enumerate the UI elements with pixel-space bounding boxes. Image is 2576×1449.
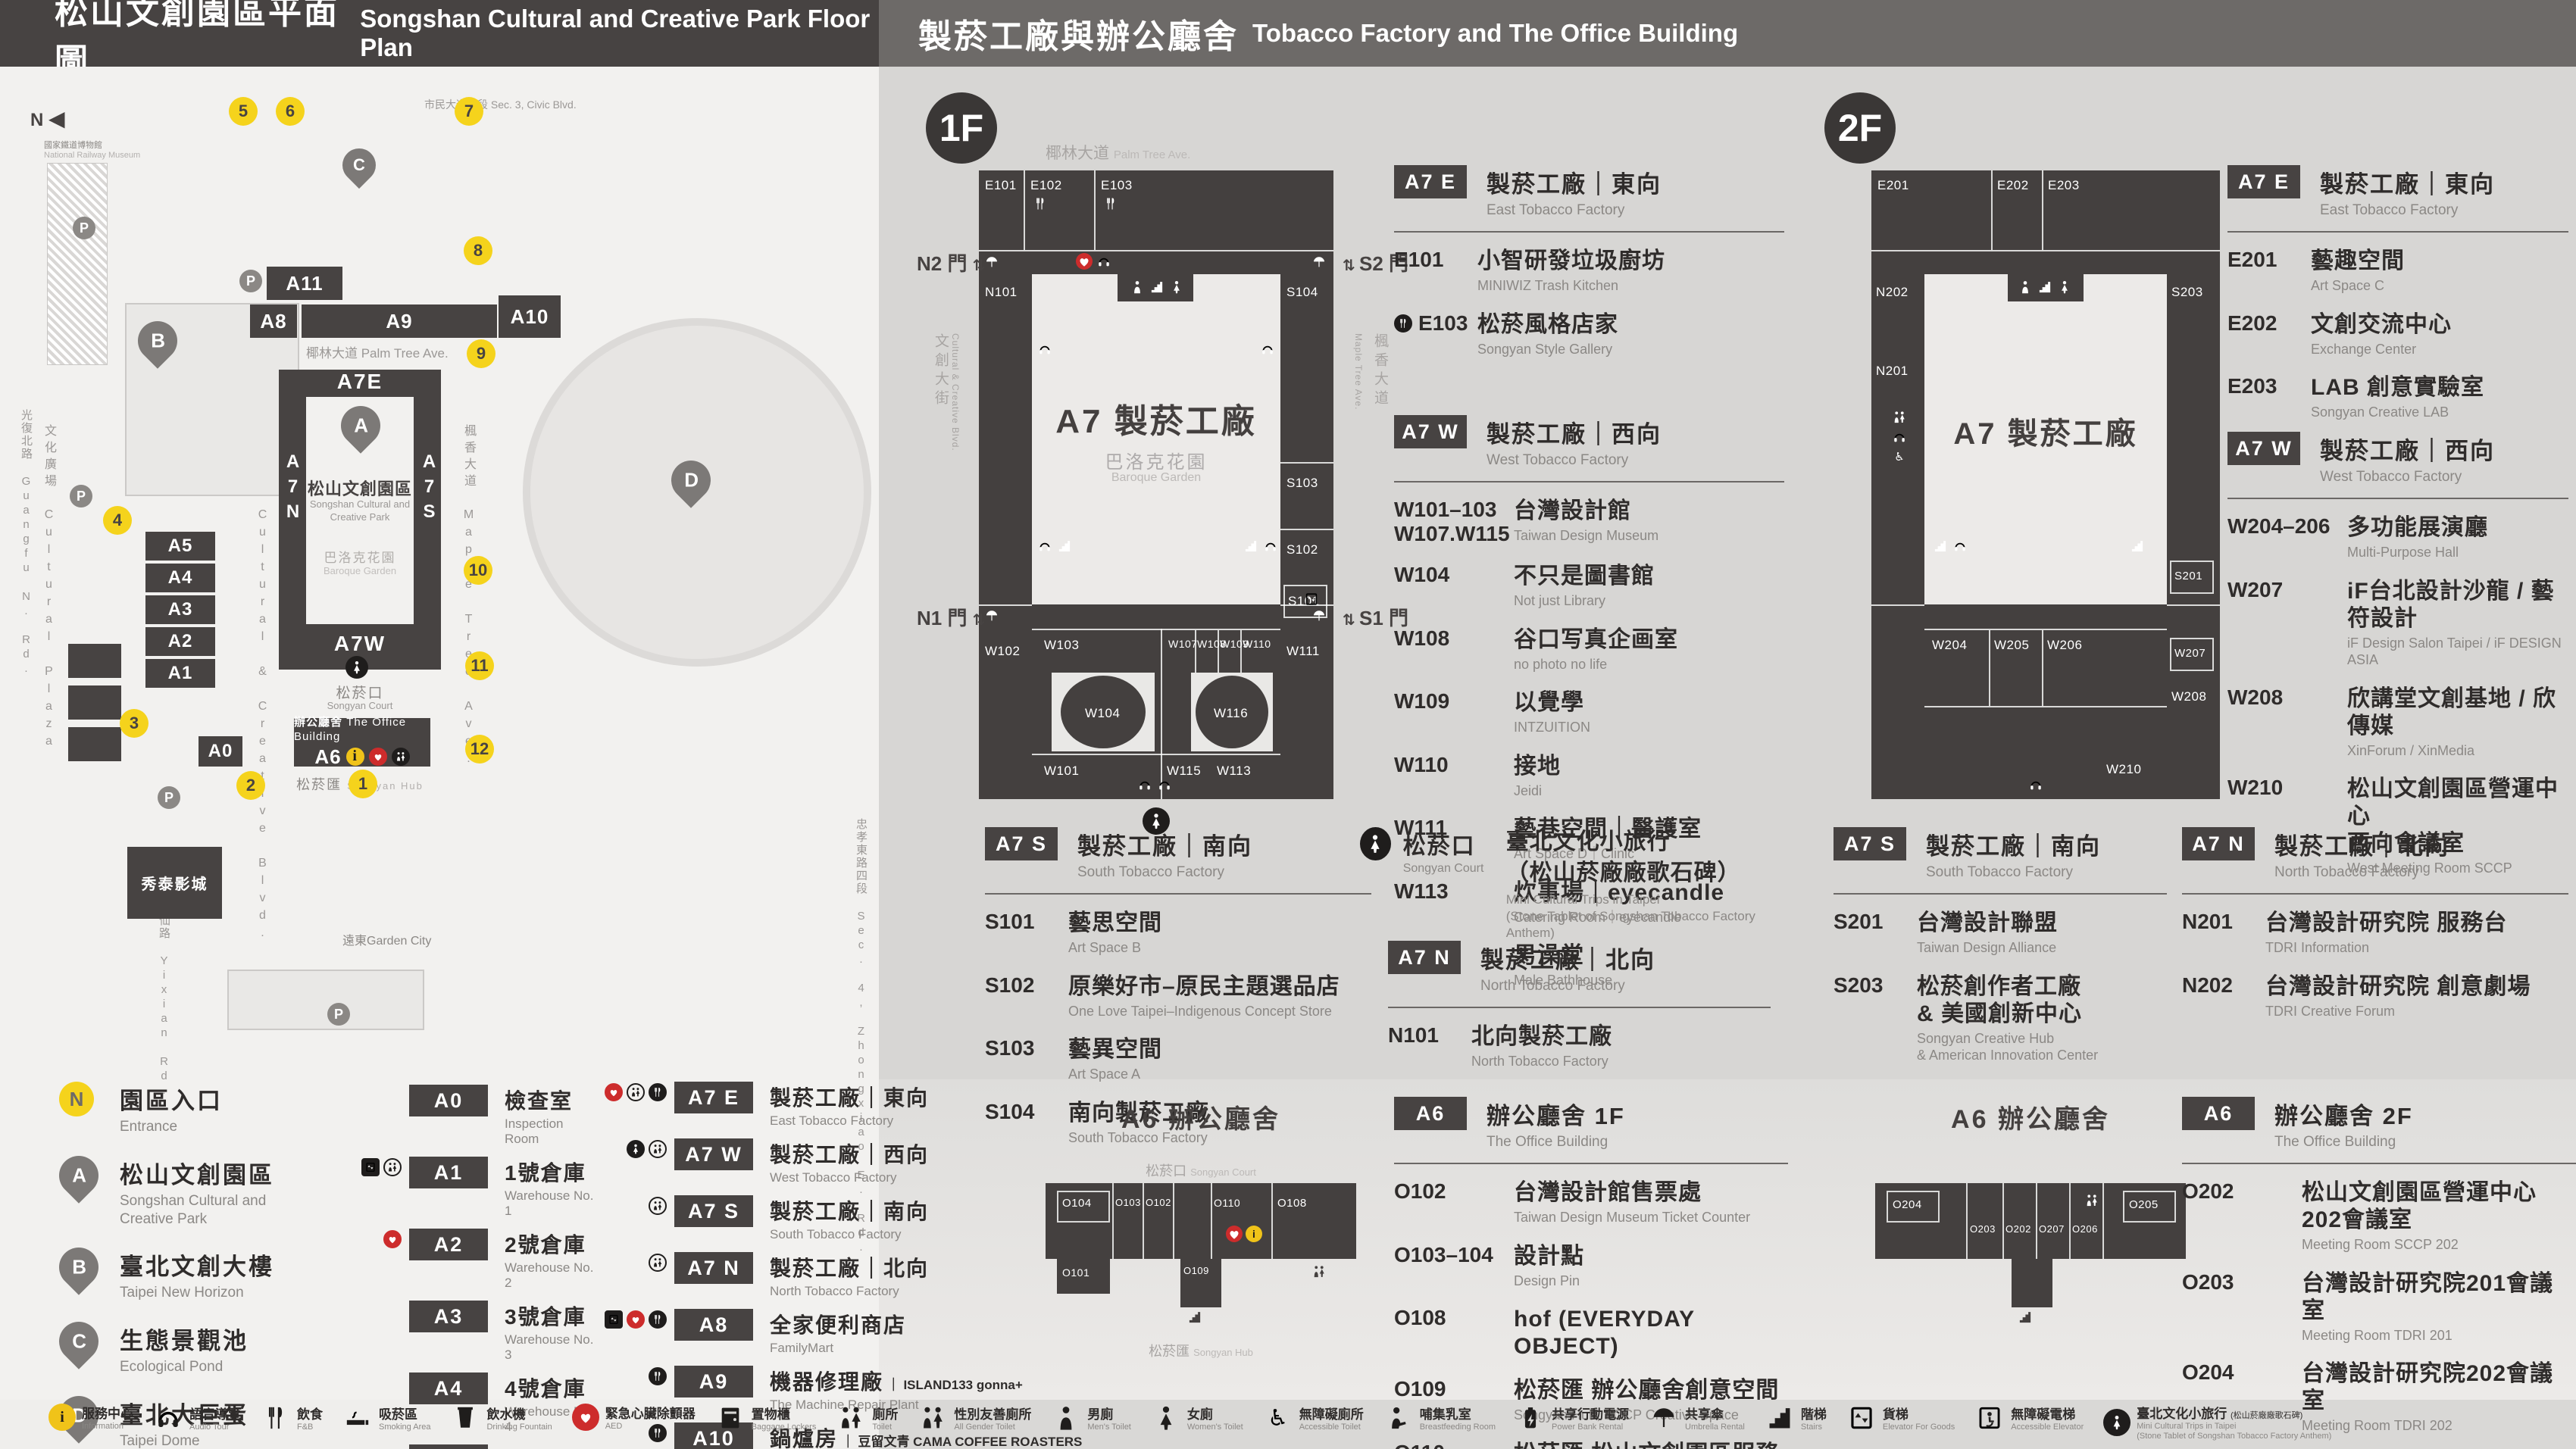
room-e103: E103 — [1101, 178, 1133, 193]
item-name-en: Art Space A — [1068, 1066, 1371, 1083]
umbrella-icon — [1649, 1403, 1679, 1433]
entrance-10: 10 — [464, 556, 492, 585]
section-a7w-2f: A7 W製菸工廠｜西向West Tobacco FactoryW204–206多… — [2227, 432, 2568, 894]
entrance-5: 5 — [229, 97, 258, 126]
power-icon — [1515, 1403, 1546, 1433]
building-badge: A6 — [1394, 1097, 1467, 1130]
gate-n1: N1 門 ⇅ — [917, 603, 983, 631]
section-title-zh: 製菸工廠與辦公廳舍 — [918, 9, 1239, 58]
section-title-en: The Office Building — [1487, 1134, 1625, 1151]
aed-icon — [572, 1404, 599, 1431]
locker-icon — [715, 1403, 746, 1433]
building-badge: A9 — [674, 1366, 753, 1397]
item-name-en: Songyan Creative Hub& American Innovatio… — [1917, 1030, 2167, 1064]
legend-accelev: 無障礙電梯Accessible Elevator — [1974, 1403, 2084, 1433]
legend-toilet: 廁所Toilet — [836, 1403, 898, 1433]
legend-places: N園區入口EntranceA松山文創園區Songshan Cultural an… — [59, 1082, 324, 1449]
section-a7n-1f: A7 N製菸工廠｜北向North Tobacco FactoryN101北向製菸… — [1388, 941, 1771, 1087]
ring-label-a7e: A7E — [279, 370, 441, 394]
ring-label-a7w: A7W — [279, 632, 441, 656]
umbrella-icon — [1311, 607, 1327, 624]
info-icon: i — [1246, 1226, 1262, 1242]
building-badge: A7 N — [1388, 941, 1461, 974]
section-title-zh: 製菸工廠｜東向 — [1487, 165, 1662, 199]
aed-icon — [1226, 1226, 1243, 1242]
room-w206: W206 — [2047, 638, 2082, 653]
room-o206: O206 — [2072, 1223, 2098, 1235]
section-title-zh: 製菸工廠｜東向 — [2320, 165, 2495, 199]
list-item-E202: E202文創交流中心Exchange Center — [2227, 311, 2568, 358]
section-title-en: East Tobacco Factory — [1487, 202, 1662, 219]
aed-icon — [383, 1230, 402, 1248]
building-badge: A7 S — [1834, 827, 1906, 860]
toilet-icon — [2056, 279, 2073, 295]
item-name-en: Songyan Creative LAB — [2311, 404, 2568, 421]
room-w113: W113 — [1217, 764, 1251, 779]
item-name-zh: 藝思空間 — [1068, 910, 1371, 937]
list-item-O102: O102台灣設計館售票處Taiwan Design Museum Ticket … — [1394, 1179, 1788, 1226]
section-title-en: The Office Building — [2274, 1134, 2413, 1151]
info-icon: i — [346, 748, 364, 766]
legend-wheelchair: ♿無障礙廁所Accessible Toilet — [1263, 1403, 1364, 1433]
umbrella-icon — [983, 607, 1000, 624]
legend-umbrella: 共享傘Umbrella Rental — [1649, 1403, 1745, 1433]
legend-audio: 語音導覽Audio Tour — [153, 1403, 241, 1433]
parking-icon: P — [239, 270, 262, 292]
section-title-zh: 製菸工廠｜南向 — [1077, 827, 1252, 861]
item-name-zh: 欣講堂文創基地 / 欣傳媒 — [2347, 685, 2568, 740]
item-name-en: Taiwan Design Museum — [1514, 527, 1784, 545]
block-a6: 辦公廳舍 The Office Building A6 i — [294, 718, 430, 767]
street-guangfu: 光復北路 Guangfu N. Rd. — [18, 409, 34, 676]
room-w110: W110 — [1243, 638, 1271, 650]
section-title-zh: 辦公廳舍 1F — [1487, 1097, 1625, 1131]
audio-icon — [1891, 429, 1908, 445]
room-o109: O109 — [1183, 1265, 1209, 1276]
north-indicator: N ◀ — [30, 106, 65, 131]
section-title-zh: 製菸工廠｜西向 — [1487, 415, 1662, 449]
item-name-en: Multi-Purpose Hall — [2347, 544, 2568, 561]
section-title-zh: 辦公廳舍 2F — [2274, 1097, 2413, 1131]
info-icon: i — [48, 1404, 76, 1431]
legend-culture: 臺北文化小旅行 (松山菸廠廠歌石碑)Mini Cultural Trips in… — [2103, 1403, 2331, 1441]
item-name-zh: 小智研發垃圾廚坊 — [1477, 248, 1784, 275]
legend-man: 男廁Men's Toilet — [1051, 1403, 1131, 1433]
culture-trip-icon — [1360, 827, 1391, 860]
item-name-en: Exchange Center — [2311, 341, 2568, 358]
a6-plan-2f: A6 辦公廳舍 O204 O203 O202 O207 O206 O205 — [1856, 1091, 2205, 1394]
list-item-O203: O203台灣設計研究院201會議室Meeting Room TDRI 201 — [2182, 1270, 2576, 1344]
room-o205: O205 — [2129, 1198, 2159, 1211]
item-name-zh: LAB 創意實驗室 — [2311, 374, 2568, 401]
item-name-zh: 台灣設計館 — [1514, 498, 1784, 525]
legend-locker: 置物櫃Baggage Lockers — [715, 1403, 817, 1433]
room-o103: O103 — [1115, 1197, 1141, 1208]
songyan-court-en: Songyan Court — [279, 700, 441, 711]
section-title-zh: 製菸工廠｜北向 — [1480, 941, 1655, 975]
legend-buildings-b: A7 E製菸工廠｜東向East Tobacco FactoryA7 W製菸工廠｜… — [583, 1082, 879, 1449]
floor2-plan: E201 E202 E203 N202 N201 S203 S201 W204 … — [1818, 114, 2243, 841]
toilet-icon — [383, 1158, 402, 1176]
list-item-W108: W108谷口写真企画室no photo no life — [1394, 626, 1784, 673]
item-name-en: Design Pin — [1514, 1273, 1788, 1290]
legend-row-A7S: A7 S製菸工廠｜南向South Tobacco Factory — [583, 1195, 879, 1242]
toilet-icon — [649, 1140, 667, 1158]
item-name-zh: 藝異空間 — [1068, 1036, 1371, 1063]
section-a6-1f: A6辦公廳舍 1FThe Office BuildingO102台灣設計館售票處… — [1394, 1097, 1788, 1449]
section-title-en: West Tobacco Factory — [2320, 469, 2495, 486]
item-name-en: Art Space C — [2311, 277, 2568, 295]
toilet-icon — [649, 1197, 667, 1215]
street-cultural-plaza: 文化廣場 Cultural Plaza — [39, 424, 58, 752]
section-title-zh: 製菸工廠｜北向 — [2274, 827, 2449, 861]
entrance-key-icon: N — [59, 1082, 94, 1116]
building-badge: A6 — [2182, 1097, 2255, 1130]
block-a3: A3 — [145, 595, 215, 624]
list-item-E101: E101小智研發垃圾廚坊MINIWIZ Trash Kitchen — [1394, 248, 1784, 295]
item-name-zh: hof (EVERYDAY OBJECT) — [1514, 1306, 1788, 1360]
legend-buildings-a: A0檢查室Inspection RoomA11號倉庫Warehouse No. … — [318, 1085, 599, 1449]
legend-row-A7W: A7 W製菸工廠｜西向West Tobacco Factory — [583, 1138, 879, 1185]
building-badge: A7 S — [985, 827, 1058, 860]
room-w204: W204 — [1932, 638, 1967, 653]
item-name-zh: 松菸匯 辦公廳舍創意空間 — [1514, 1377, 1788, 1404]
songyan-court-note: 松菸口 Songyan Court 臺北文化小旅行（松山菸廠廠歌石碑） Mini… — [1360, 827, 1784, 942]
floor-plan-poster: 松山文創園區平面圖 Songshan Cultural and Creative… — [0, 0, 2576, 1449]
building-badge: A8 — [674, 1309, 753, 1341]
page-title-en: Songshan Cultural and Creative Park Floo… — [360, 5, 879, 62]
toilet-icon — [1168, 279, 1185, 295]
list-item-S103: S103藝異空間Art Space A — [985, 1036, 1371, 1083]
room-o102: O102 — [1146, 1197, 1171, 1208]
legend-fountain: 飲水機Drinking Fountain — [450, 1403, 552, 1433]
stairs-icon — [1186, 1309, 1203, 1326]
building-badge: A0 — [409, 1085, 488, 1116]
legend-elevator: 貨梯Elevator For Goods — [1846, 1403, 1955, 1433]
item-name-zh: 不只是圖書館 — [1514, 563, 1784, 590]
audio-icon — [1952, 538, 1968, 554]
room-s104: S104 — [1286, 285, 1318, 300]
section-title-en: South Tobacco Factory — [1077, 864, 1252, 881]
item-name-en: iF Design Salon Taipei / iF DESIGN ASIA — [2347, 635, 2568, 669]
legend-toilet: 性別友善廁所All Gender Toilet — [918, 1403, 1031, 1433]
parking-icon: P — [70, 485, 92, 507]
header-left: 松山文創園區平面圖 Songshan Cultural and Creative… — [0, 0, 879, 67]
parking-icon: P — [327, 1003, 350, 1026]
elevator-icon — [605, 1310, 623, 1329]
building-badge: A7 E — [1394, 165, 1467, 198]
list-item-W110: W110接地Jeidi — [1394, 753, 1784, 800]
building-badge: A5 — [409, 1444, 488, 1449]
list-item-E201: E201藝趣空間Art Space C — [2227, 248, 2568, 295]
room-o108: O108 — [1277, 1197, 1307, 1210]
toilet-icon — [649, 1254, 667, 1272]
room-s103: S103 — [1286, 476, 1318, 491]
item-name-zh: 藝趣空間 — [2311, 248, 2568, 275]
toilet-icon — [392, 748, 410, 766]
room-o110: O110 — [1214, 1197, 1240, 1209]
room-e102: E102 — [1030, 178, 1062, 193]
item-name-zh: 台灣設計研究院 創意劇場 — [2265, 973, 2568, 1001]
room-w205: W205 — [1994, 638, 2029, 653]
room-w116: W116 — [1214, 706, 1248, 721]
fountain-icon — [450, 1403, 480, 1433]
legend-woman: 女廁Women's Toilet — [1151, 1403, 1243, 1433]
legend-row-A5: A55號倉庫Warehouse No. 5 — [318, 1444, 599, 1449]
room-e201: E201 — [1877, 178, 1909, 193]
item-name-zh: 台灣設計聯盟 — [1917, 910, 2167, 937]
a6-plan-1f: A6 辦公廳舍 松菸口 Songyan Court O104 O103 O102… — [1023, 1091, 1379, 1394]
room-o203: O203 — [1970, 1223, 1996, 1235]
fork-icon — [649, 1367, 667, 1385]
toilet-icon — [1891, 409, 1908, 426]
fork-icon — [649, 1083, 667, 1101]
item-name-zh: 文創交流中心 — [2311, 311, 2568, 339]
room-s201: S201 — [2174, 570, 2202, 582]
legend-row-A7E: A7 E製菸工廠｜東向East Tobacco Factory — [583, 1082, 879, 1129]
section-a7s-2f: A7 S製菸工廠｜南向South Tobacco FactoryS201台灣設計… — [1834, 827, 2167, 1081]
entrance-7: 7 — [455, 97, 483, 126]
list-item-O108: O108hof (EVERYDAY OBJECT) — [1394, 1306, 1788, 1360]
building-badge: A7 S — [674, 1195, 753, 1227]
item-name-en: Taiwan Design Alliance — [1917, 939, 2167, 957]
umbrella-icon — [1311, 254, 1327, 270]
list-item-W104: W104不只是圖書館Not just Library — [1394, 563, 1784, 610]
toilet-icon — [2017, 279, 2034, 295]
item-name-zh: iF台北設計沙龍 / 藝符設計 — [2347, 578, 2568, 632]
railway-museum-block — [47, 163, 108, 365]
building-badge: A4 — [409, 1372, 488, 1404]
item-name-en: Meeting Room SCCP 202 — [2302, 1236, 2576, 1254]
baroque-garden-zh: 巴洛克花園 — [279, 547, 441, 566]
block-a0: A0 — [199, 736, 242, 767]
room-w104: W104 — [1085, 706, 1120, 721]
garden-city-label: 遠東Garden City — [342, 930, 431, 948]
aed-icon — [627, 1310, 645, 1329]
building-badge: A7 N — [2182, 827, 2255, 860]
item-name-zh: 台灣設計研究院 服務台 — [2265, 910, 2568, 937]
item-name-en: One Love Taipei–Indigenous Concept Store — [1068, 1003, 1371, 1020]
item-name-en: Songyan Style Gallery — [1477, 341, 1784, 358]
toilet-icon — [1129, 279, 1146, 295]
item-name-en: no photo no life — [1514, 656, 1784, 673]
legend-place-A: A松山文創園區Songshan Cultural and Creative Pa… — [59, 1156, 324, 1229]
section-title-zh: 製菸工廠｜西向 — [2320, 432, 2495, 466]
room-w102: W102 — [985, 644, 1020, 659]
room-e202: E202 — [1997, 178, 2029, 193]
section-a7n-2f: A7 N製菸工廠｜北向North Tobacco FactoryN201台灣設計… — [2182, 827, 2568, 1036]
park-name-zh: 松山文創園區 — [279, 476, 441, 500]
item-name-zh: 設計點 — [1514, 1243, 1788, 1270]
list-item-S102: S102原樂好市–原民主題選品店One Love Taipei–Indigeno… — [985, 973, 1371, 1020]
room-n201: N201 — [1876, 364, 1909, 379]
aed-icon — [369, 748, 387, 766]
room-w207: W207 — [2174, 647, 2206, 660]
block-a4: A4 — [145, 564, 215, 592]
room-s203: S203 — [2171, 285, 2203, 300]
legend-place-C: C生態景觀池Ecological Pond — [59, 1322, 324, 1376]
block-a1: A1 — [145, 659, 215, 688]
parking-icon: P — [158, 786, 180, 809]
item-name-zh: 松菸創作者工廠& 美國創新中心 — [1917, 973, 2167, 1028]
room-o202: O202 — [2005, 1223, 2031, 1235]
room-w208: W208 — [2171, 689, 2206, 704]
entrance-2: 2 — [236, 771, 265, 800]
item-name-en: TDRI Information — [2265, 939, 2568, 957]
item-name-zh: 接地 — [1514, 753, 1784, 780]
fork-icon — [1394, 314, 1412, 333]
list-item-S101: S101藝思空間Art Space B — [985, 910, 1371, 957]
audio-icon — [1259, 341, 1276, 358]
umbrella-icon — [983, 254, 1000, 270]
list-item-N101: N101北向製菸工廠North Tobacco Factory — [1388, 1023, 1771, 1070]
room-w103: W103 — [1044, 638, 1079, 653]
entrance-1: 1 — [349, 770, 377, 798]
elevator-icon — [1846, 1403, 1877, 1433]
room-o207: O207 — [2039, 1223, 2065, 1235]
elevator-icon — [1303, 591, 1320, 607]
audio-icon — [1136, 776, 1153, 793]
stairs-icon — [1932, 538, 1949, 554]
room-e203: E203 — [2048, 178, 2080, 193]
building-badge: A7 W — [1394, 415, 1467, 448]
songyan-court-zh: 松菸口 — [279, 682, 441, 702]
block-a10: A10 — [499, 295, 561, 338]
building-badge: A7 W — [2227, 432, 2300, 465]
plan-center-title: A7 製菸工廠 — [1055, 394, 1256, 442]
list-item-W207: W207iF台北設計沙龍 / 藝符設計iF Design Salon Taipe… — [2227, 578, 2568, 669]
legend-power: 共享行動電源Power Bank Rental — [1515, 1403, 1629, 1433]
culture-icon — [627, 1140, 645, 1158]
baby-icon — [1383, 1403, 1414, 1433]
section-a6-2f: A6辦公廳舍 2FThe Office BuildingO202松山文創園區營運… — [2182, 1097, 2576, 1449]
toilet-icon — [836, 1403, 866, 1433]
room-o101: O101 — [1062, 1266, 1089, 1279]
icon-legend: i服務中心Information語音導覽Audio Tour飲食F&B吸菸區Sm… — [48, 1403, 2564, 1441]
section-a7e-2f: A7 E製菸工廠｜東向East Tobacco FactoryE201藝趣空間A… — [2227, 165, 2568, 438]
item-name-en: Art Space B — [1068, 939, 1371, 957]
list-item-S203: S203松菸創作者工廠& 美國創新中心Songyan Creative Hub&… — [1834, 973, 2167, 1064]
culture-icon — [2103, 1409, 2131, 1436]
audio-icon — [2027, 776, 2044, 793]
list-item-O202: O202松山文創園區營運中心202會議室Meeting Room SCCP 20… — [2182, 1179, 2576, 1254]
elevator-icon — [361, 1158, 380, 1176]
entrance-11: 11 — [465, 651, 494, 680]
section-title-en: Tobacco Factory and The Office Building — [1252, 19, 1738, 48]
plan-center-title: A7 製菸工廠 — [1953, 409, 2137, 453]
legend-smoking: 吸菸區Smoking Area — [342, 1403, 430, 1433]
fork-icon — [261, 1403, 291, 1433]
building-badge: A7 E — [2227, 165, 2300, 198]
audio-icon — [1036, 341, 1053, 358]
building-badge: A3 — [409, 1301, 488, 1332]
item-name-zh: 松菸風格店家 — [1477, 311, 1784, 339]
block-a11: A11 — [267, 267, 342, 300]
room-n101: N101 — [985, 285, 1018, 300]
item-name-zh: 松山文創園區營運中心202會議室 — [2302, 1179, 2576, 1234]
building-badge: A1 — [409, 1157, 488, 1188]
block-a9: A9 — [302, 304, 497, 338]
toilet-icon — [627, 1083, 645, 1101]
baroque-garden-en: Baroque Garden — [279, 565, 441, 576]
aed-icon — [1076, 253, 1093, 270]
stairs-icon — [1149, 279, 1165, 295]
section-title-en: North Tobacco Factory — [2274, 864, 2449, 881]
legend-row-A1: A11號倉庫Warehouse No. 1 — [318, 1157, 599, 1219]
item-name-en: INTZUITION — [1514, 719, 1784, 736]
section-title-en: West Tobacco Factory — [1487, 452, 1662, 469]
list-item-W204–206: W204–206多功能展演廳Multi-Purpose Hall — [2227, 514, 2568, 561]
audio-icon — [1096, 253, 1112, 270]
item-name-zh: 北向製菸工廠 — [1471, 1023, 1771, 1051]
street-yixian: 逸仙路 Yixian Rd. — [156, 901, 172, 1098]
item-name-zh: 谷口写真企画室 — [1514, 626, 1784, 654]
gate-n2: N2 門 ⇅ — [917, 248, 983, 276]
street-cc-blvd: 文創大街 Cultural & Creative Blvd. — [253, 424, 271, 944]
entrance-12: 12 — [465, 735, 494, 764]
legend-row-A3: A33號倉庫Warehouse No. 3 — [318, 1301, 599, 1363]
list-item-W208: W208欣講堂文創基地 / 欣傳媒XinForum / XinMedia — [2227, 685, 2568, 760]
room-w111: W111 — [1286, 644, 1320, 659]
building-badge: A7 N — [674, 1252, 753, 1284]
list-item-E203: E203LAB 創意實驗室Songyan Creative LAB — [2227, 374, 2568, 421]
block-a8: A8 — [250, 304, 297, 338]
item-name-zh: 以覺學 — [1514, 689, 1784, 717]
list-item-E103: E103松菸風格店家Songyan Style Gallery — [1394, 311, 1784, 358]
stairs-icon — [2037, 279, 2053, 295]
item-name-en: North Tobacco Factory — [1471, 1053, 1771, 1070]
item-name-zh: 台灣設計館售票處 — [1514, 1179, 1788, 1207]
room-o204: O204 — [1893, 1198, 1922, 1211]
aed-icon — [605, 1083, 623, 1101]
cinema-block: 秀泰影城 — [127, 847, 222, 919]
item-name-en: Meeting Room TDRI 201 — [2302, 1327, 2576, 1344]
room-s102: S102 — [1286, 542, 1318, 557]
room-w210: W210 — [2106, 762, 2141, 777]
accelev-icon — [1974, 1403, 2005, 1433]
street-palm: 椰林大道 Palm Tree Ave. — [306, 342, 449, 361]
item-name-en: TDRI Creative Forum — [2265, 1003, 2568, 1020]
audio-icon — [1262, 538, 1279, 554]
item-name-en: Jeidi — [1514, 782, 1784, 800]
legend-fork: 飲食F&B — [261, 1403, 323, 1433]
wheelchair-icon: ♿ — [1891, 448, 1908, 465]
audio-icon — [1156, 776, 1173, 793]
item-name-zh: 多功能展演廳 — [2347, 514, 2568, 542]
toilet-icon — [1311, 1263, 1327, 1280]
audio-icon — [1036, 538, 1053, 554]
entrance-4: 4 — [103, 506, 132, 535]
entrance-3: 3 — [120, 709, 148, 738]
item-name-en: XinForum / XinMedia — [2347, 742, 2568, 760]
legend-aed: 緊急心臟除顫器AED — [572, 1403, 696, 1432]
building-badge: A7 W — [674, 1138, 753, 1170]
entrance-9: 9 — [467, 339, 496, 368]
item-name-en: MINIWIZ Trash Kitchen — [1477, 277, 1784, 295]
entrance-6: 6 — [276, 97, 305, 126]
section-a7e-1f: A7 E製菸工廠｜東向East Tobacco FactoryE101小智研發垃… — [1394, 165, 1784, 374]
legend-baby: 哺集乳室Breastfeeding Room — [1383, 1403, 1496, 1433]
legend-info: i服務中心Information — [48, 1403, 133, 1432]
header-right: 製菸工廠與辦公廳舍 Tobacco Factory and The Office… — [879, 0, 2576, 67]
stairs-icon — [1765, 1403, 1795, 1433]
culture-trip-icon — [345, 656, 368, 679]
smoking-icon — [342, 1403, 373, 1433]
map-pin-icon: B — [51, 1239, 107, 1295]
room-w101: W101 — [1044, 764, 1079, 779]
item-name-zh: 原樂好市–原民主題選品店 — [1068, 973, 1371, 1001]
section-title-en: South Tobacco Factory — [1926, 864, 2101, 881]
